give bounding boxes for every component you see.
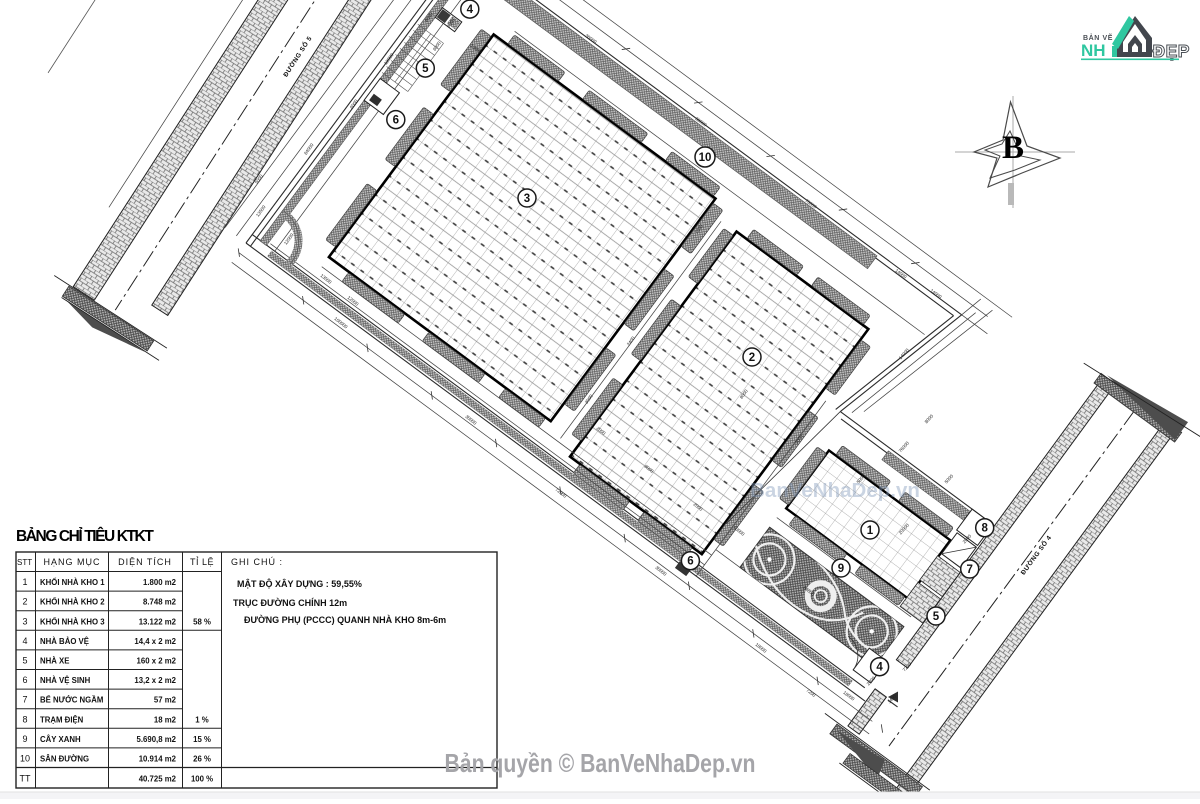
svg-text:TRẠM ĐIỆN: TRẠM ĐIỆN — [40, 715, 84, 724]
svg-text:8.748 m2: 8.748 m2 — [143, 598, 177, 607]
svg-text:8: 8 — [981, 523, 988, 535]
svg-text:4: 4 — [467, 4, 474, 16]
svg-text:14,4 x 2 m2: 14,4 x 2 m2 — [134, 637, 176, 646]
svg-text:10: 10 — [20, 754, 30, 764]
svg-text:STT: STT — [17, 558, 32, 567]
svg-text:160 x 2 m2: 160 x 2 m2 — [137, 657, 177, 666]
svg-text:7: 7 — [22, 695, 27, 705]
svg-text:5: 5 — [422, 63, 429, 75]
svg-text:26 %: 26 % — [193, 755, 211, 764]
svg-text:TT: TT — [20, 774, 31, 784]
svg-text:8: 8 — [22, 714, 27, 724]
svg-text:BỂ NƯỚC NGẦM: BỂ NƯỚC NGẦM — [40, 695, 103, 705]
svg-text:NHÀ XE: NHÀ XE — [40, 657, 69, 666]
svg-text:DIỆN TÍCH: DIỆN TÍCH — [118, 557, 172, 567]
svg-text:10.914 m2: 10.914 m2 — [139, 755, 177, 764]
svg-text:5: 5 — [22, 656, 27, 666]
svg-text:SÂN ĐƯỜNG: SÂN ĐƯỜNG — [40, 755, 89, 764]
svg-text:6: 6 — [22, 675, 27, 685]
svg-text:9: 9 — [838, 563, 844, 575]
svg-text:NH: NH — [1081, 41, 1106, 60]
svg-text:57 m2: 57 m2 — [154, 696, 177, 705]
svg-text:ĐƯỜNG PHỤ (PCCC) QUANH NHÀ KHO: ĐƯỜNG PHỤ (PCCC) QUANH NHÀ KHO 8m-6m — [244, 614, 446, 625]
svg-text:13.122 m2: 13.122 m2 — [139, 617, 177, 626]
svg-text:1.800 m2: 1.800 m2 — [143, 578, 177, 587]
svg-text:4: 4 — [876, 662, 883, 674]
svg-text:GHI CHÚ :: GHI CHÚ : — [231, 557, 283, 567]
svg-text:1: 1 — [867, 525, 874, 537]
svg-text:58 %: 58 % — [193, 617, 211, 626]
svg-text:7: 7 — [966, 564, 972, 576]
svg-text:TỈ LỆ: TỈ LỆ — [190, 556, 214, 567]
svg-text:6: 6 — [393, 115, 399, 127]
svg-text:B: B — [1002, 130, 1024, 166]
svg-text:KHỐI NHÀ KHO 2: KHỐI NHÀ KHO 2 — [40, 597, 105, 607]
svg-text:3: 3 — [524, 193, 530, 205]
svg-text:1 %: 1 % — [195, 715, 209, 724]
svg-text:100 %: 100 % — [191, 775, 213, 784]
svg-text:BẢNG CHỈ TIÊU KTKT: BẢNG CHỈ TIÊU KTKT — [16, 527, 154, 545]
svg-text:13,2 x 2 m2: 13,2 x 2 m2 — [134, 676, 176, 685]
svg-text:5.690,8 m2: 5.690,8 m2 — [137, 735, 177, 744]
svg-text:NHÀ VỆ SINH: NHÀ VỆ SINH — [40, 676, 91, 685]
svg-text:KHỐI NHÀ KHO 1: KHỐI NHÀ KHO 1 — [40, 577, 105, 587]
svg-text:2: 2 — [749, 352, 755, 364]
svg-text:NHÀ BẢO VỆ: NHÀ BẢO VỆ — [40, 637, 89, 646]
svg-text:KHỐI NHÀ KHO 3: KHỐI NHÀ KHO 3 — [40, 616, 105, 626]
svg-text:40.725 m2: 40.725 m2 — [139, 775, 177, 784]
svg-text:Bản quyền © BanVeNhaDep.vn: Bản quyền © BanVeNhaDep.vn — [445, 748, 756, 778]
svg-text:9: 9 — [22, 734, 27, 744]
svg-text:TRỤC ĐƯỜNG CHÍNH 12m: TRỤC ĐƯỜNG CHÍNH 12m — [233, 597, 347, 608]
svg-text:15 %: 15 % — [193, 735, 211, 744]
svg-text:2: 2 — [22, 597, 27, 607]
svg-text:4: 4 — [22, 636, 27, 646]
svg-text:HẠNG MỤC: HẠNG MỤC — [44, 557, 101, 567]
svg-text:BanVeNhaDep.vn: BanVeNhaDep.vn — [750, 479, 920, 502]
svg-text:5: 5 — [933, 611, 940, 623]
svg-text:ĐẸP: ĐẸP — [1153, 41, 1190, 61]
svg-text:6: 6 — [687, 556, 693, 568]
svg-text:18 m2: 18 m2 — [154, 715, 177, 724]
svg-text:10: 10 — [699, 152, 712, 164]
svg-text:CÂY XANH: CÂY XANH — [40, 735, 81, 744]
svg-text:1: 1 — [22, 577, 27, 587]
svg-text:MẬT ĐỘ XÂY DỰNG : 59,55%: MẬT ĐỘ XÂY DỰNG : 59,55% — [237, 578, 362, 589]
svg-text:3: 3 — [22, 616, 27, 626]
